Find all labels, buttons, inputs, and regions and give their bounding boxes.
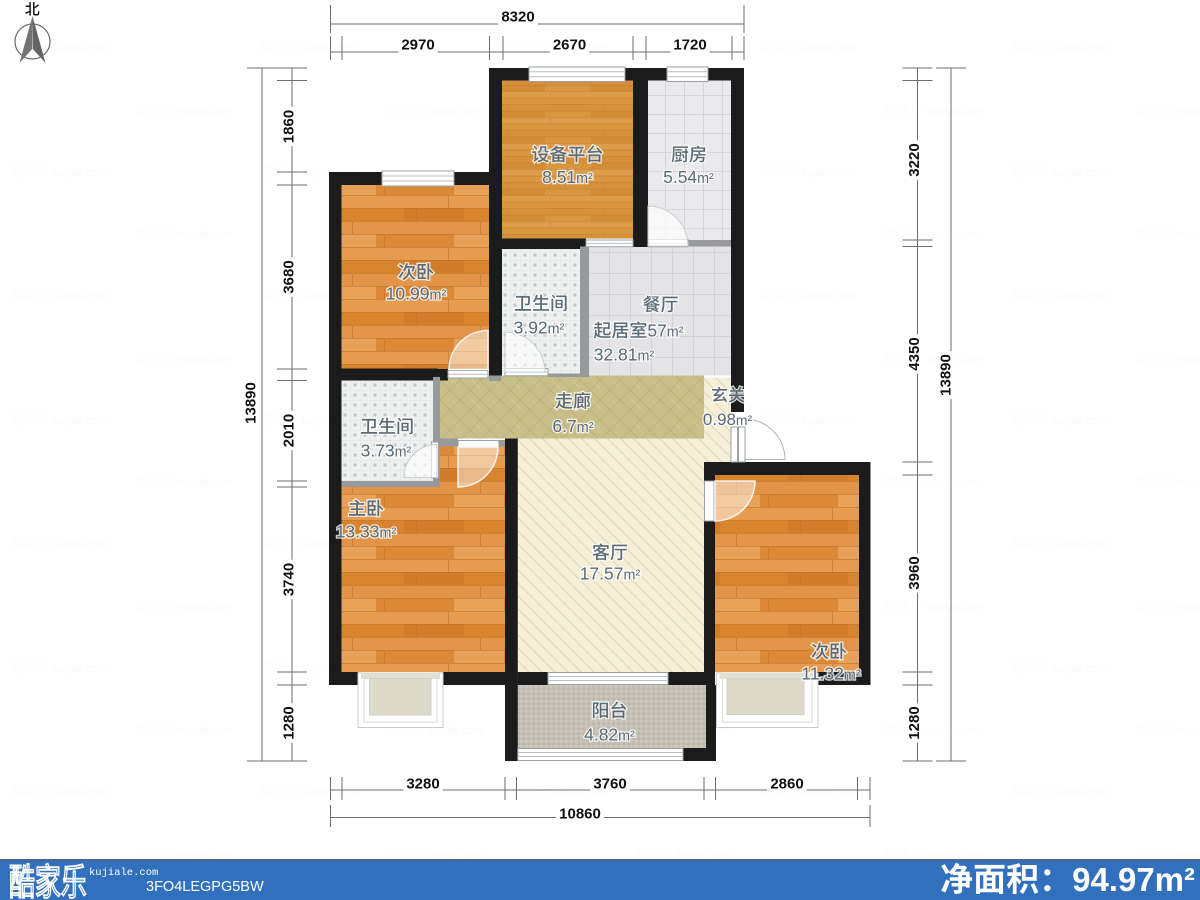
svg-text:m²: m² (844, 667, 861, 683)
svg-text:10.99: 10.99 (386, 283, 430, 303)
svg-text:17.57: 17.57 (580, 563, 624, 583)
svg-text:m²: m² (380, 525, 397, 541)
svg-text:m²: m² (667, 324, 684, 340)
svg-text:m²: m² (697, 171, 714, 187)
svg-text:57: 57 (647, 320, 666, 340)
svg-text:10860: 10860 (559, 805, 601, 822)
svg-text:m²: m² (395, 444, 412, 460)
svg-text:3680: 3680 (280, 260, 297, 293)
svg-text:4.82: 4.82 (584, 724, 618, 744)
svg-text:5.54: 5.54 (663, 167, 697, 187)
svg-text:11.32: 11.32 (801, 663, 844, 683)
svg-text:1860: 1860 (280, 110, 297, 143)
svg-text:4350: 4350 (906, 337, 923, 370)
svg-text:1720: 1720 (673, 36, 706, 53)
svg-text:m²: m² (624, 567, 641, 583)
svg-text:m²: m² (577, 420, 594, 436)
svg-text:1280: 1280 (280, 706, 297, 739)
svg-text:1280: 1280 (906, 706, 923, 739)
svg-text:kujiale.com: kujiale.com (89, 867, 158, 879)
svg-text:m²: m² (548, 321, 565, 337)
svg-text:8.51: 8.51 (542, 167, 576, 187)
svg-text:m²: m² (576, 171, 593, 187)
svg-text:13.33: 13.33 (336, 521, 380, 541)
svg-text:2970: 2970 (401, 36, 434, 53)
svg-text:m²: m² (618, 728, 635, 744)
svg-text:13890: 13890 (937, 354, 954, 396)
svg-text:m²: m² (736, 412, 753, 428)
svg-text:0.98: 0.98 (703, 410, 736, 429)
svg-text:3FO4LEGPG5BW: 3FO4LEGPG5BW (146, 879, 264, 895)
svg-text:3.92: 3.92 (514, 317, 548, 337)
svg-text:3280: 3280 (406, 775, 439, 792)
svg-text:32.81: 32.81 (594, 344, 638, 364)
svg-text:2010: 2010 (280, 414, 297, 447)
svg-text:m²: m² (638, 348, 655, 364)
svg-text:3760: 3760 (593, 775, 626, 792)
svg-text:3960: 3960 (906, 556, 923, 589)
svg-text:3740: 3740 (280, 563, 297, 596)
svg-text:2670: 2670 (553, 36, 586, 53)
svg-text:3.73: 3.73 (361, 440, 395, 460)
svg-text:m²: m² (430, 287, 447, 303)
svg-text:8320: 8320 (501, 8, 534, 25)
svg-text:3220: 3220 (906, 143, 923, 176)
svg-text:2860: 2860 (770, 775, 803, 792)
svg-text:6.7: 6.7 (552, 416, 576, 436)
svg-text:94.97m²: 94.97m² (1072, 861, 1195, 898)
svg-text:13890: 13890 (242, 382, 259, 424)
